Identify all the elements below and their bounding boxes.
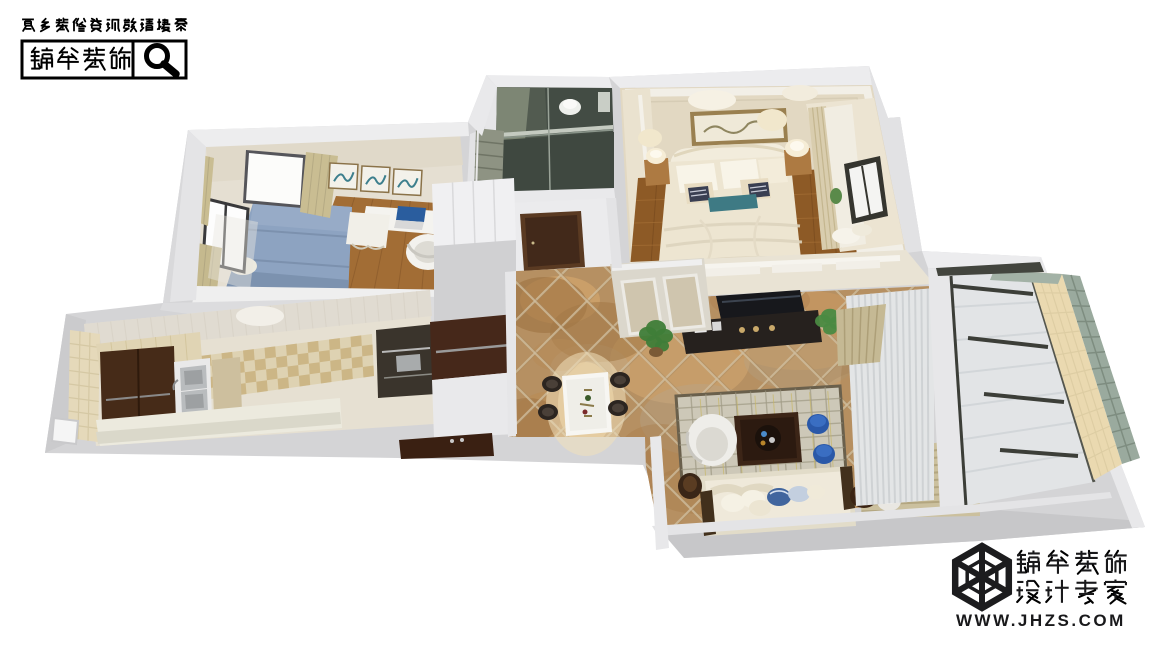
svg-text:WWW.JHZS.COM: WWW.JHZS.COM bbox=[956, 611, 1126, 630]
